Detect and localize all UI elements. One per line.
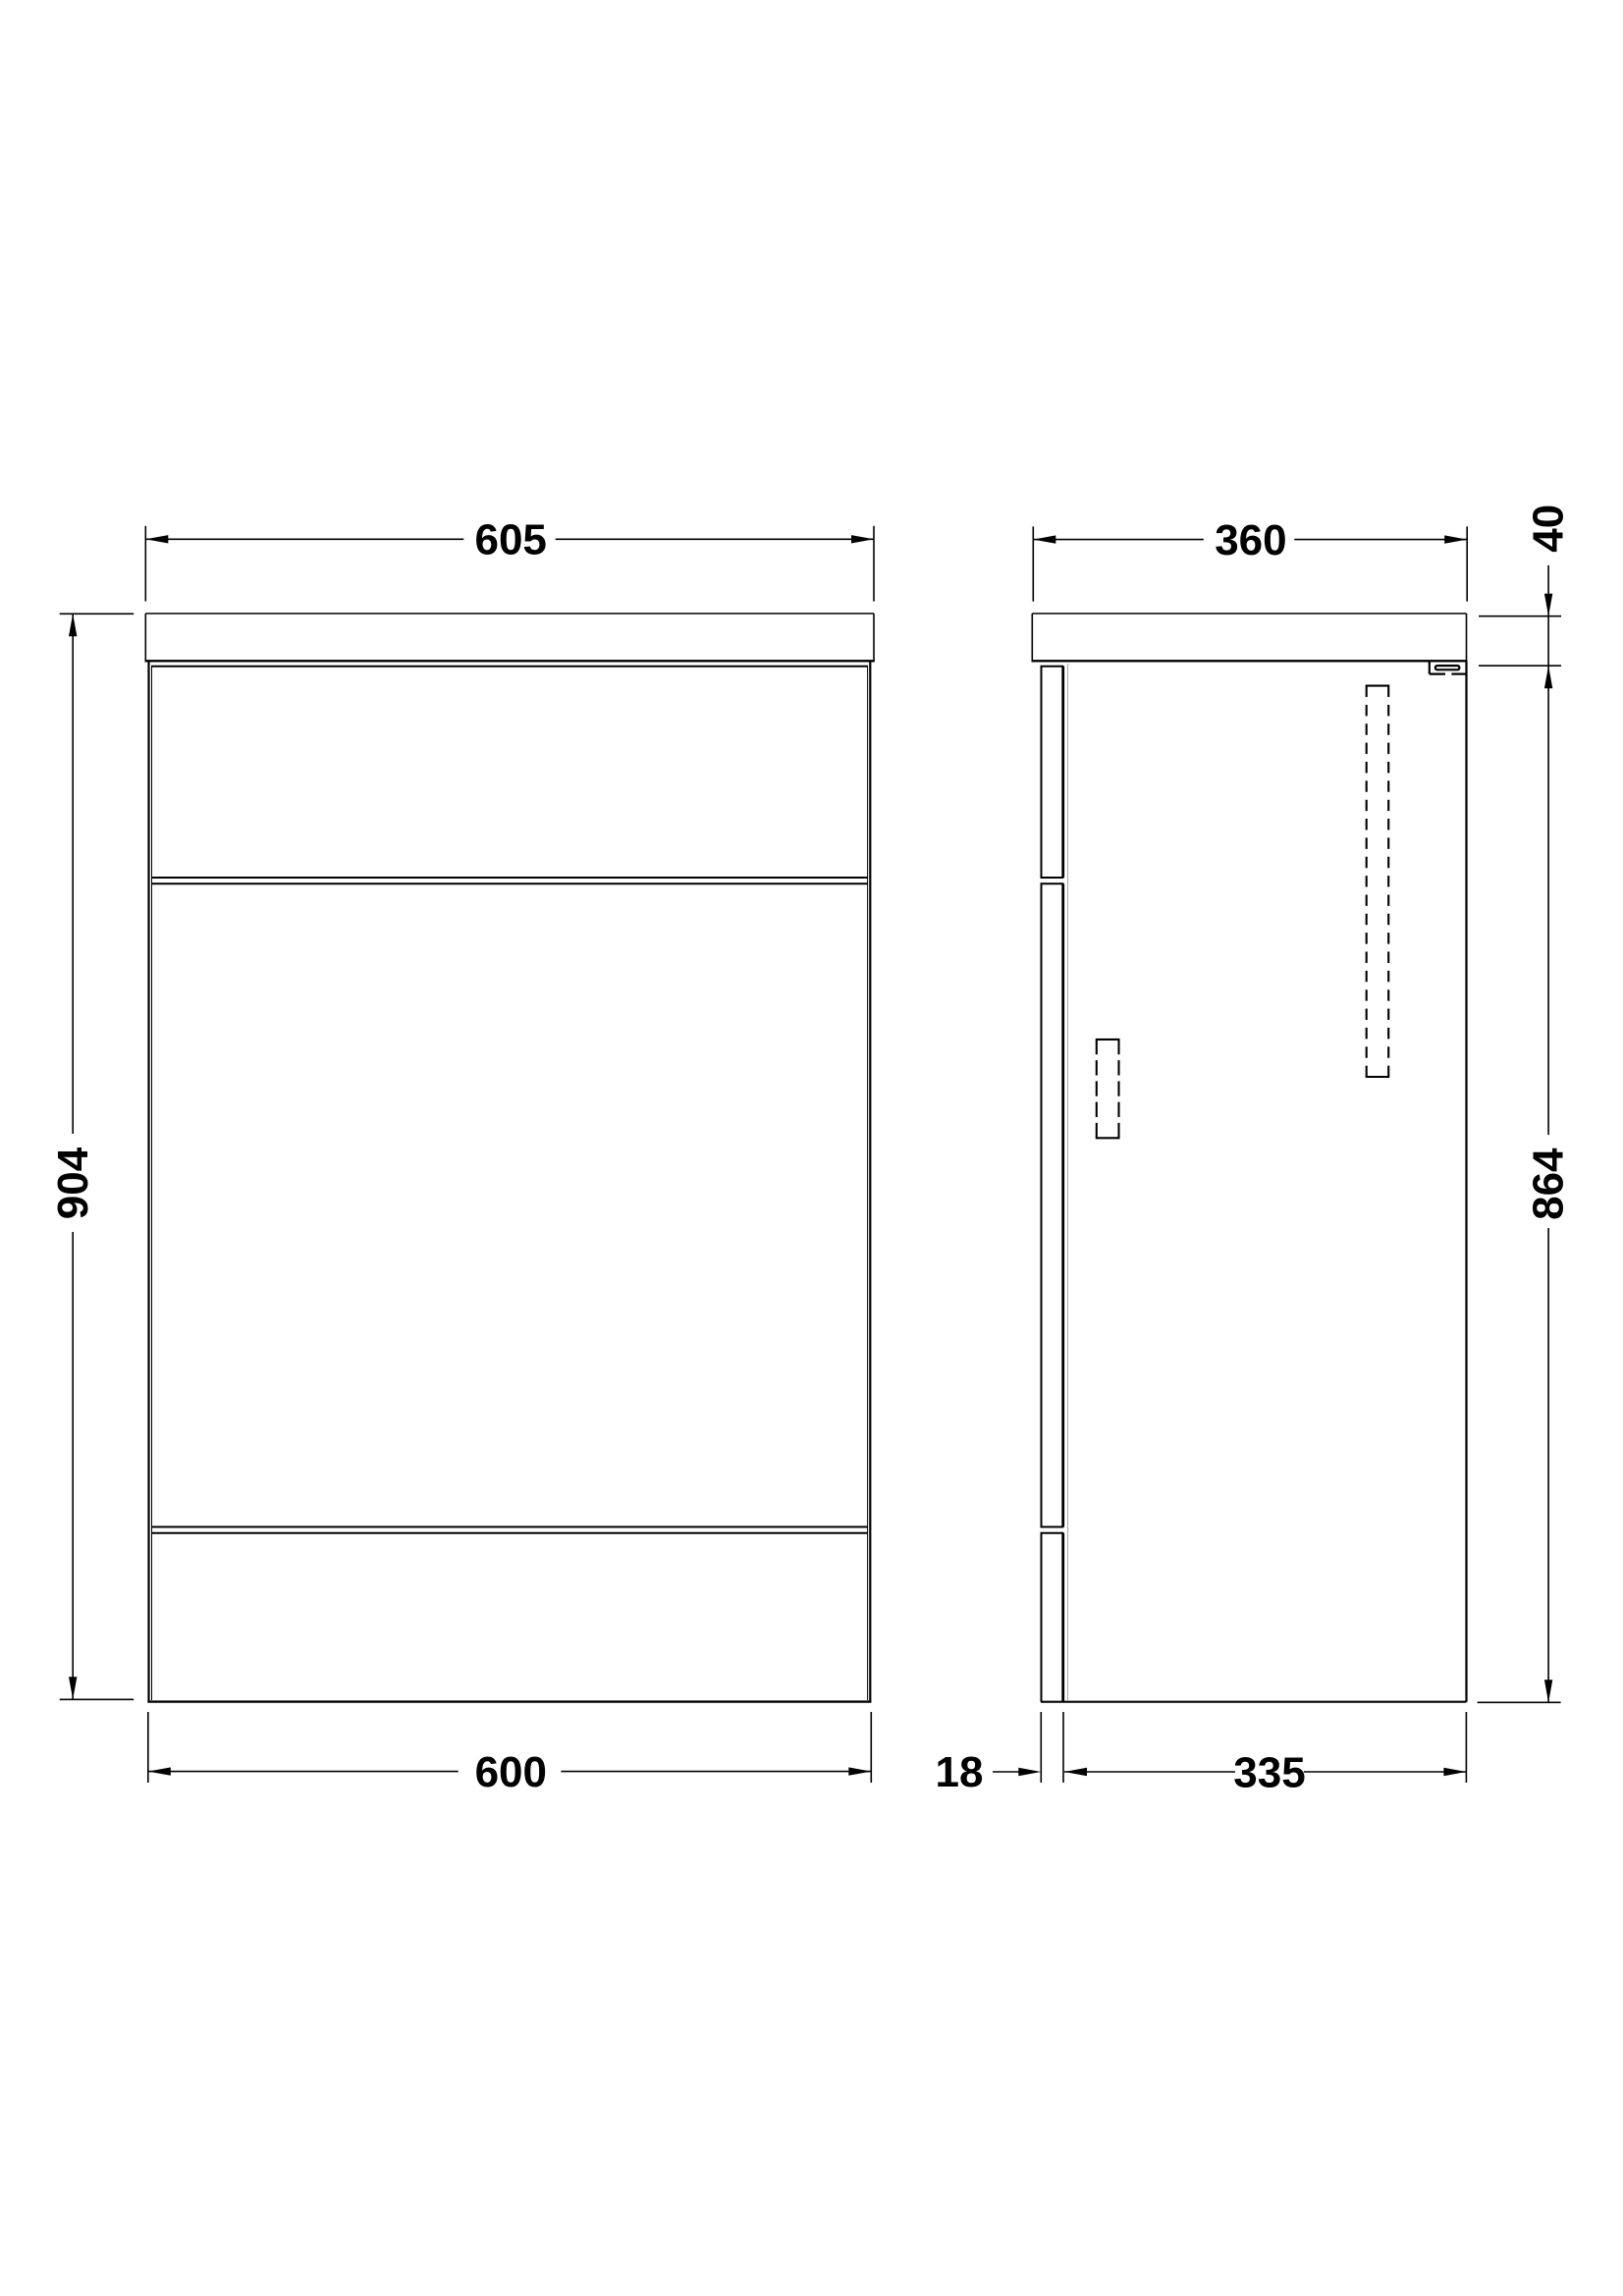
svg-text:864: 864: [1524, 1148, 1572, 1220]
svg-text:605: 605: [474, 516, 546, 564]
svg-text:904: 904: [49, 1147, 97, 1219]
svg-text:18: 18: [936, 1748, 984, 1796]
svg-text:335: 335: [1233, 1748, 1305, 1796]
svg-text:360: 360: [1215, 516, 1286, 564]
svg-text:600: 600: [475, 1748, 547, 1796]
svg-text:40: 40: [1524, 505, 1572, 553]
